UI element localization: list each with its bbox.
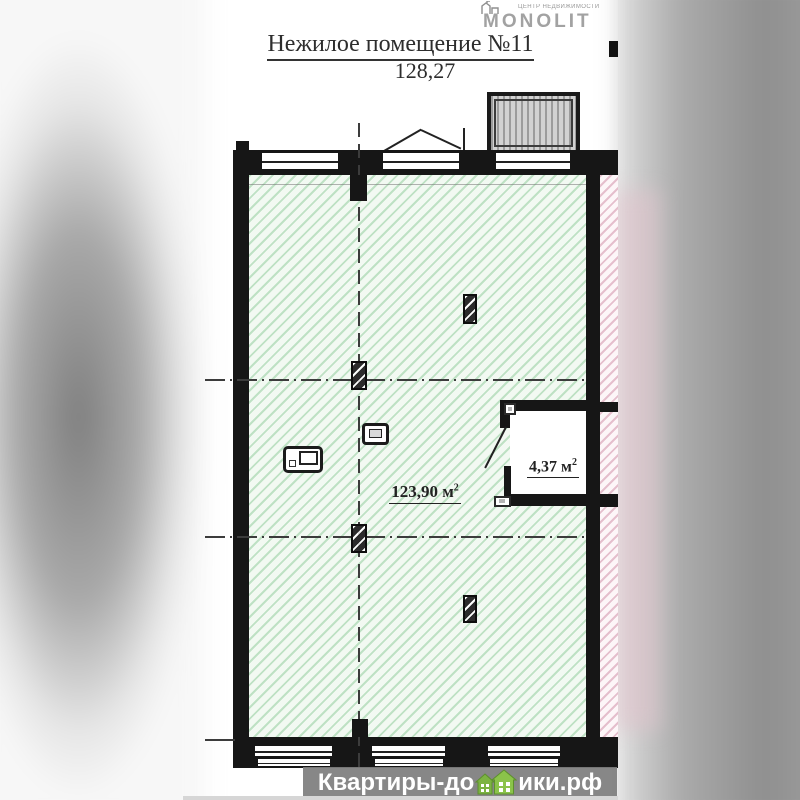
panel-inner-detail	[299, 451, 318, 465]
window-bottom-3	[488, 746, 560, 756]
clipped-text-fragment	[609, 41, 618, 57]
window-sill-2	[375, 759, 443, 766]
blurred-pink-smear	[612, 190, 660, 730]
window-sill-1	[258, 759, 330, 766]
party-wall-extension-top	[600, 402, 618, 412]
axis-tick-bottom	[205, 739, 235, 741]
wall-inner-face-line	[249, 184, 586, 185]
bottom-gray-strip	[183, 796, 618, 800]
plan-title-text: Нежилое помещение №11	[267, 31, 533, 61]
column-axis-2	[351, 524, 367, 553]
party-wall-extension-bottom	[600, 494, 618, 507]
wall-pier-bottom	[352, 719, 368, 737]
storage-area-sup: 2	[572, 457, 577, 468]
entrance-door-opening	[496, 153, 570, 169]
window-bottom-2	[372, 746, 445, 756]
main-area-sup: 2	[454, 482, 459, 493]
storage-pier-detail-top	[504, 403, 516, 415]
porch-steps	[494, 99, 573, 147]
site-watermark: Квартиры-до ики.рф	[303, 767, 617, 798]
column-free-2	[463, 595, 477, 623]
wall-pier-top	[350, 175, 367, 201]
storage-wall-stub-bottom	[504, 466, 511, 495]
blurred-left-edge	[0, 0, 205, 800]
plan-title: Нежилое помещение №11	[228, 31, 573, 61]
adjacent-premises-hatch	[600, 175, 618, 737]
main-room-area-label: 123,90 м2	[381, 482, 469, 504]
wall-left	[233, 150, 249, 768]
ventilation-unit-symbol	[362, 423, 389, 445]
axis-line-horizontal-2	[205, 536, 586, 538]
watermark-text-left: Квартиры-до	[318, 771, 474, 795]
axis-line-horizontal-1	[205, 379, 586, 381]
storage-room-interior	[510, 411, 586, 494]
axis-line-vertical	[358, 123, 360, 768]
main-area-value: 123,90 м	[391, 482, 454, 501]
entrance-porch	[487, 92, 580, 154]
agency-tagline: ЦЕНТР НЕДВИЖИМОСТИ	[518, 4, 618, 10]
storage-area-value: 4,37 м	[529, 458, 572, 475]
panel-knob-detail	[289, 460, 296, 467]
houses-icon	[475, 768, 517, 795]
vent-inner-detail	[369, 429, 382, 438]
agency-brand-name: MONOLIT	[483, 11, 617, 33]
storage-area-label: 4,37 м2	[515, 457, 591, 478]
porch-railing-line	[463, 128, 465, 152]
storage-wall-bottom	[504, 494, 586, 506]
window-bottom-1	[255, 746, 332, 756]
floorplan-image: ЦЕНТР НЕДВИЖИМОСТИ MONOLIT Нежилое помещ…	[0, 0, 800, 800]
column-free-1	[463, 294, 477, 324]
window-top-2	[383, 153, 459, 169]
column-axis-1	[351, 361, 367, 390]
storage-pier-detail-bottom	[494, 496, 511, 507]
electrical-panel-symbol	[283, 446, 323, 473]
watermark-text-right: ики.рф	[518, 771, 602, 795]
window-top-1	[262, 153, 338, 169]
total-area-value: 128,27	[350, 58, 500, 84]
window-sill-3	[490, 759, 558, 766]
